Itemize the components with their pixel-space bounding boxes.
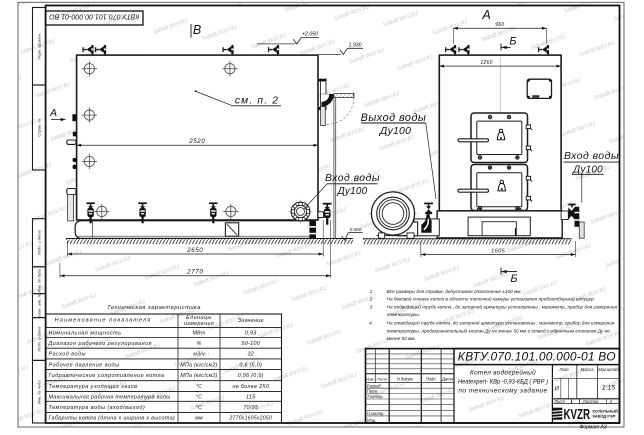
svg-text:Вход воды: Вход воды (564, 151, 619, 162)
svg-text:мм: мм (195, 416, 203, 422)
svg-text:На подводящей трубе котла ,: На подводящей трубе котла , до запорной … (387, 303, 618, 309)
svg-text:Масштаб: Масштаб (598, 367, 619, 372)
svg-text:КВТУ.070.101.00.000-01 ВО: КВТУ.070.101.00.000-01 ВО (458, 351, 616, 363)
svg-text:МПа (кгс/см2): МПа (кгс/см2) (180, 373, 217, 379)
svg-text:Взам. инв. №: Взам. инв. № (37, 293, 42, 318)
svg-text:%: % (197, 341, 202, 347)
svg-text:Перв. примен.: Перв. примен. (37, 33, 42, 60)
svg-text:Лит.: Лит. (558, 367, 569, 372)
svg-text:4.: 4. (369, 321, 373, 327)
svg-text:В: В (193, 23, 201, 37)
svg-text:И: И (554, 386, 559, 393)
svg-text:0.000: 0.000 (350, 227, 362, 232)
svg-text:Ду100: Ду100 (337, 186, 368, 197)
svg-text:Ду100: Ду100 (379, 125, 411, 137)
svg-text:Расход воды: Расход воды (49, 352, 86, 358)
svg-text:0,93: 0,93 (245, 331, 257, 337)
svg-text:Диапазон рабочего регулировани: Диапазон рабочего регулирования (48, 341, 153, 347)
svg-text:Т.контр.: Т.контр. (367, 394, 384, 399)
svg-text:На отводящей трубе котла ,до з: На отводящей трубе котла ,до запорной ар… (387, 320, 615, 326)
svg-text:°С: °С (196, 384, 202, 390)
svg-text:м3/ч: м3/ч (193, 352, 205, 358)
svg-text:температуры.: температуры. (387, 312, 421, 317)
svg-text:МПа (кгс/см2): МПа (кгс/см2) (180, 362, 217, 368)
svg-text:На боковой стенке котла в обла: На боковой стенке котла в области топочн… (387, 296, 595, 302)
svg-text:Формат А3: Формат А3 (579, 425, 607, 430)
svg-text:Выход воды: Выход воды (361, 112, 427, 124)
svg-text:2: 2 (369, 297, 373, 303)
svg-text:32: 32 (247, 352, 254, 358)
svg-text:Масса: Масса (581, 367, 595, 372)
svg-text:Температура уходящих газов: Температура уходящих газов (49, 384, 138, 390)
svg-text:МВт: МВт (193, 331, 206, 337)
svg-text:Лист: Лист (376, 377, 388, 382)
svg-text:Инв. № подл.: Инв. № подл. (37, 379, 42, 404)
svg-text:Техническая характеристика: Техническая характеристика (107, 305, 201, 311)
svg-text:Подп. и дата: Подп. и дата (37, 326, 42, 352)
svg-text:Справ. №: Справ. № (37, 118, 42, 137)
svg-text:Температура воды (вход/выход): Температура воды (вход/выход) (49, 405, 146, 411)
svg-text:Котел водогрейный: Котел водогрейный (470, 368, 536, 376)
svg-text:960: 960 (495, 22, 504, 28)
svg-text:Рабочее давление воды: Рабочее давление воды (49, 362, 120, 368)
svg-text:1605: 1605 (491, 248, 506, 254)
svg-text:Значение: Значение (238, 318, 264, 324)
svg-text:Подп. и дата: Подп. и дата (37, 229, 42, 255)
svg-text:Максимальная рабочая температу: Максимальная рабочая температура воды (49, 394, 171, 400)
svg-text:Н.контр.: Н.контр. (367, 411, 385, 416)
svg-text:70/95: 70/95 (243, 405, 259, 411)
svg-text:1: 1 (370, 289, 373, 295)
svg-text:50-100: 50-100 (241, 341, 260, 347)
svg-text:Вход воды: Вход воды (325, 173, 380, 184)
svg-text:Все размеры для справок, допус: Все размеры для справок, допустимое откл… (387, 289, 522, 294)
svg-text:ЗАВОД РЭП: ЗАВОД РЭП (593, 414, 616, 419)
svg-text:3: 3 (370, 304, 373, 310)
svg-text:измерения: измерения (184, 321, 214, 327)
svg-text:2770х1605х2050: 2770х1605х2050 (228, 416, 272, 422)
svg-text:по техническому задание: по техническому задание (458, 386, 547, 394)
svg-text:Габариты котла (длина х ширина: Габариты котла (длина х ширина х высота) (49, 416, 175, 422)
svg-text:Номинальная мощность: Номинальная мощность (49, 331, 122, 337)
svg-text:Гидравлическое сопротивление к: Гидравлическое сопротивление котла (49, 373, 165, 379)
svg-text:Б: Б (509, 36, 516, 48)
svg-text:0,6 (6,0): 0,6 (6,0) (239, 362, 262, 368)
svg-text:Б: Б (510, 273, 517, 285)
svg-text:0,06 (0,6): 0,06 (0,6) (238, 373, 264, 379)
svg-text:Heatexpert- КВр -0,93-КБД ( РВ: Heatexpert- КВр -0,93-КБД ( РВР ) (458, 378, 548, 385)
svg-text:Пров.: Пров. (367, 389, 378, 394)
svg-text:115: 115 (246, 394, 256, 400)
svg-text:А: А (49, 107, 57, 119)
svg-text:не более 250: не более 250 (232, 384, 269, 390)
svg-text:Изм.: Изм. (366, 377, 375, 382)
svg-text:Ду100: Ду100 (572, 164, 603, 175)
svg-text:1260: 1260 (480, 60, 492, 66)
svg-text:Утв.: Утв. (367, 418, 377, 423)
svg-text:КВТУ.070.101.00.000-01 ВО: КВТУ.070.101.00.000-01 ВО (49, 13, 139, 22)
svg-text:Наименование показателя: Наименование показателя (55, 318, 152, 324)
svg-text:N докум.: N докум. (397, 377, 414, 382)
svg-text:°С: °С (196, 394, 202, 400)
svg-text:2520: 2520 (188, 138, 205, 145)
svg-text:2650: 2650 (186, 247, 203, 254)
svg-text:Листов: Листов (582, 399, 599, 404)
svg-text:Подп.: Подп. (426, 377, 437, 382)
svg-text:Единицы: Единицы (186, 315, 212, 321)
svg-text:Инв. № дубл.: Инв. № дубл. (37, 268, 42, 293)
svg-text:менее 50 мм.: менее 50 мм. (387, 336, 416, 341)
svg-text:°С: °С (196, 405, 202, 411)
svg-text:температуры, предохранительный: температуры, предохранительный клапан Ду… (387, 328, 611, 334)
svg-text:Разраб.: Разраб. (367, 383, 382, 388)
svg-text:+2.050: +2.050 (302, 32, 318, 38)
svg-text:см. п. 2: см. п. 2 (235, 96, 279, 107)
svg-text:1.930: 1.930 (349, 42, 362, 48)
svg-text:2770: 2770 (186, 269, 203, 276)
svg-text:А: А (481, 8, 490, 22)
svg-text:Лист: Лист (553, 399, 565, 404)
svg-text:Дата: Дата (441, 377, 454, 382)
svg-text:KVZR: KVZR (564, 407, 591, 423)
svg-text:1:15: 1:15 (602, 384, 615, 391)
